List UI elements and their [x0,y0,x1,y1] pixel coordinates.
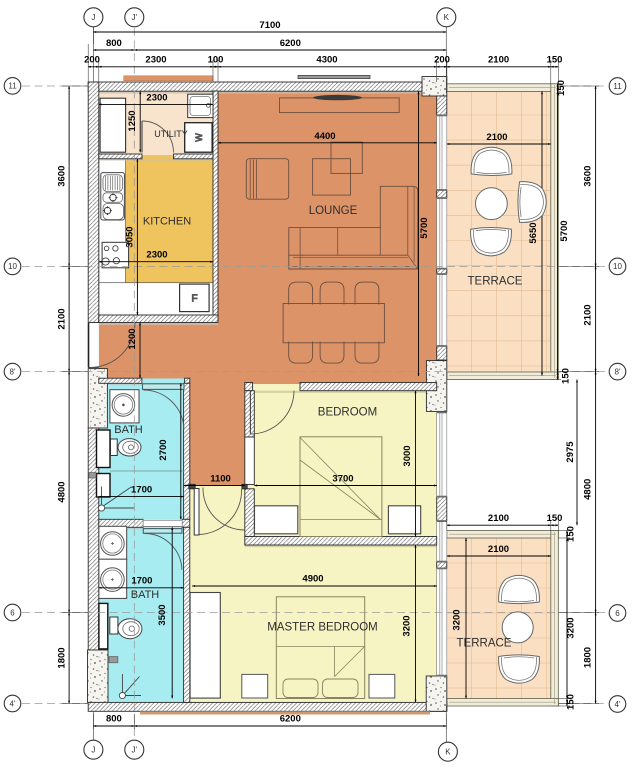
svg-text:K: K [444,13,450,22]
svg-text:8': 8' [615,367,621,376]
svg-text:3200: 3200 [452,609,463,630]
svg-text:4900: 4900 [302,574,323,585]
svg-text:BATH: BATH [131,589,160,601]
svg-text:150: 150 [547,513,563,524]
svg-text:150: 150 [566,694,577,710]
svg-text:3200: 3200 [402,615,413,636]
svg-text:J': J' [132,746,138,755]
svg-text:1100: 1100 [210,473,231,484]
svg-text:UTILITY: UTILITY [154,129,188,139]
svg-text:2100: 2100 [488,55,509,66]
svg-text:1700: 1700 [131,484,152,495]
svg-text:1700: 1700 [131,576,152,587]
svg-text:F: F [191,294,197,305]
svg-text:2100: 2100 [57,308,68,329]
svg-text:3050: 3050 [124,226,135,247]
svg-text:LOUNGE: LOUNGE [309,205,358,217]
svg-text:K: K [445,748,451,757]
svg-text:7100: 7100 [259,20,280,31]
svg-text:8': 8' [10,367,16,376]
svg-text:2300: 2300 [145,55,166,66]
svg-text:150: 150 [556,80,567,96]
svg-text:BATH: BATH [114,424,143,436]
svg-text:5650: 5650 [528,222,539,243]
svg-text:3500: 3500 [157,604,168,625]
svg-text:5700: 5700 [419,217,430,238]
svg-text:5700: 5700 [559,220,570,241]
svg-text:3200: 3200 [566,617,577,638]
svg-text:3000: 3000 [402,445,413,466]
svg-text:150: 150 [566,526,577,542]
svg-text:TERRACE: TERRACE [457,638,512,650]
svg-text:1800: 1800 [583,647,594,668]
svg-text:150: 150 [561,368,572,384]
svg-text:3700: 3700 [332,473,353,484]
svg-text:2100: 2100 [583,304,594,325]
svg-text:2300: 2300 [146,250,167,261]
svg-text:J: J [91,13,95,22]
svg-text:4800: 4800 [57,481,68,502]
svg-text:4400: 4400 [314,131,335,142]
svg-text:6200: 6200 [280,38,301,49]
svg-text:800: 800 [106,38,122,49]
svg-text:J': J' [132,13,138,22]
svg-text:2700: 2700 [158,439,169,460]
svg-text:MASTER BEDROOM: MASTER BEDROOM [267,622,378,634]
svg-text:6: 6 [615,609,620,618]
svg-text:10: 10 [8,262,17,271]
svg-text:150: 150 [547,55,563,66]
svg-text:BEDROOM: BEDROOM [318,407,377,419]
svg-text:2100: 2100 [486,132,507,143]
svg-text:1200: 1200 [127,328,138,349]
svg-text:W: W [194,133,204,142]
svg-text:J: J [91,746,95,755]
svg-text:2100: 2100 [488,513,509,524]
svg-text:3600: 3600 [57,166,68,187]
svg-text:200: 200 [434,55,450,66]
svg-text:1800: 1800 [57,647,68,668]
svg-text:TERRACE: TERRACE [468,276,523,288]
svg-text:1250: 1250 [127,110,138,131]
svg-text:2975: 2975 [565,441,576,463]
svg-text:2100: 2100 [488,544,509,555]
svg-text:800: 800 [106,714,122,725]
svg-text:4': 4' [615,700,621,709]
svg-text:100: 100 [208,55,224,66]
svg-text:11: 11 [613,82,622,91]
svg-text:4300: 4300 [316,55,337,66]
svg-text:3600: 3600 [583,166,594,187]
svg-text:11: 11 [8,82,17,91]
svg-text:200: 200 [84,55,100,66]
svg-text:4': 4' [10,699,16,708]
svg-text:6: 6 [10,608,15,617]
svg-text:2300: 2300 [146,93,167,104]
svg-text:6200: 6200 [280,714,301,725]
svg-text:KITCHEN: KITCHEN [143,216,191,228]
svg-text:10: 10 [613,262,622,271]
svg-text:4800: 4800 [583,479,594,500]
